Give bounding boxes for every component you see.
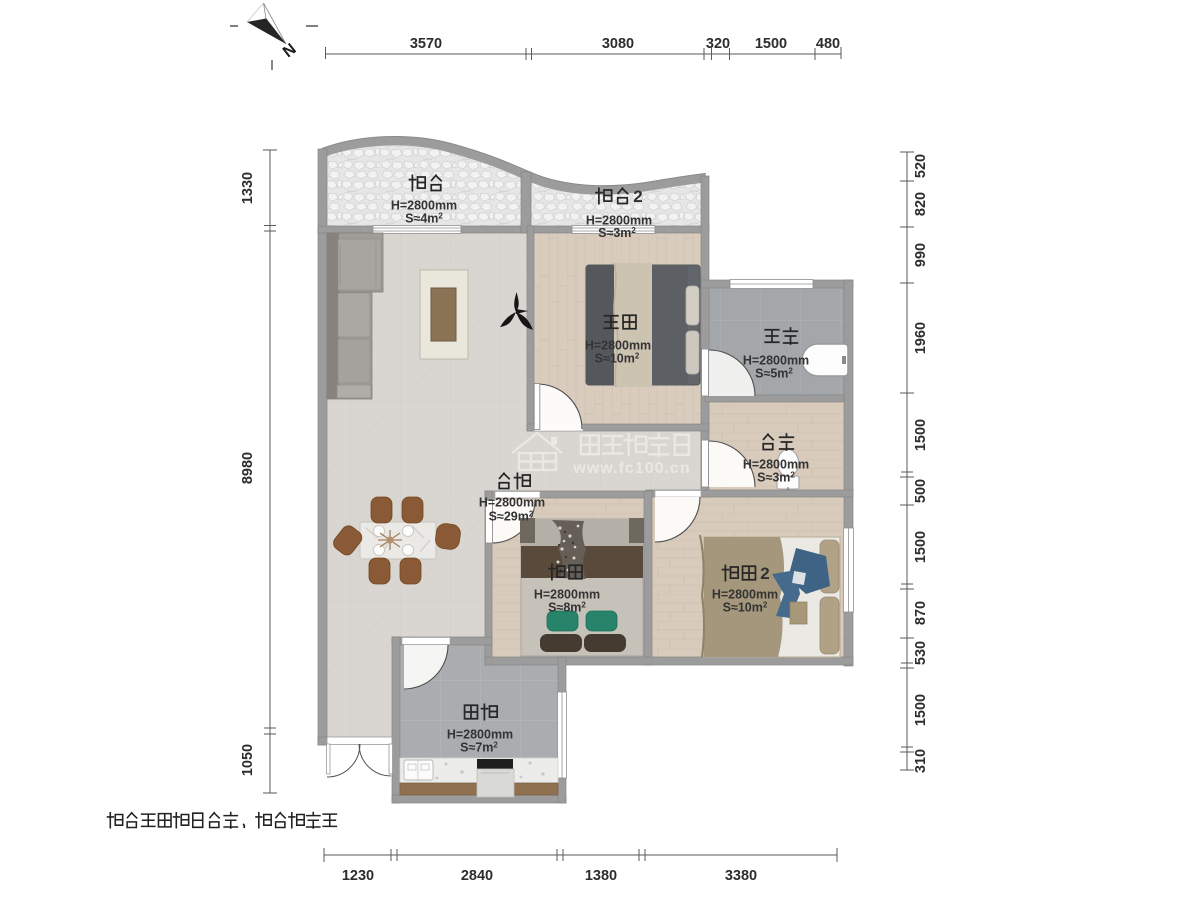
svg-text:480: 480 bbox=[816, 36, 840, 52]
svg-text:H=2800mm: H=2800mm bbox=[447, 728, 513, 742]
svg-text:1500: 1500 bbox=[913, 419, 929, 451]
svg-text:S≈5m2: S≈5m2 bbox=[755, 367, 793, 381]
svg-text:1230: 1230 bbox=[342, 868, 374, 884]
svg-text:www.fc100.cn: www.fc100.cn bbox=[572, 460, 690, 477]
svg-text:H=2800mm: H=2800mm bbox=[743, 458, 809, 472]
svg-text:S≈4m2: S≈4m2 bbox=[405, 212, 443, 226]
svg-text:H=2800mm: H=2800mm bbox=[712, 588, 778, 602]
svg-text:S≈29m2: S≈29m2 bbox=[489, 510, 534, 524]
svg-text:1500: 1500 bbox=[913, 694, 929, 726]
svg-text:3570: 3570 bbox=[410, 36, 442, 52]
svg-text:530: 530 bbox=[913, 641, 929, 665]
svg-text:500: 500 bbox=[913, 479, 929, 503]
svg-text:8980: 8980 bbox=[240, 452, 256, 484]
svg-text:H=2800mm: H=2800mm bbox=[479, 496, 545, 510]
svg-text:820: 820 bbox=[913, 192, 929, 216]
svg-text:2: 2 bbox=[633, 187, 642, 206]
svg-text:320: 320 bbox=[706, 36, 730, 52]
svg-text:H=2800mm: H=2800mm bbox=[743, 354, 809, 368]
svg-text:1500: 1500 bbox=[913, 531, 929, 563]
svg-text:310: 310 bbox=[913, 749, 929, 773]
svg-text:S≈3m2: S≈3m2 bbox=[598, 226, 636, 240]
svg-text:3380: 3380 bbox=[725, 868, 757, 884]
svg-text:S≈3m2: S≈3m2 bbox=[757, 471, 795, 485]
svg-text:S≈10m2: S≈10m2 bbox=[595, 352, 640, 366]
svg-text:3080: 3080 bbox=[602, 36, 634, 52]
svg-text:2: 2 bbox=[760, 564, 769, 583]
svg-text:1050: 1050 bbox=[240, 744, 256, 776]
svg-text:2840: 2840 bbox=[461, 868, 493, 884]
svg-text:870: 870 bbox=[913, 601, 929, 625]
svg-text:1330: 1330 bbox=[240, 172, 256, 204]
svg-text:1960: 1960 bbox=[913, 322, 929, 354]
svg-text:N: N bbox=[280, 41, 300, 62]
svg-text:990: 990 bbox=[913, 243, 929, 267]
svg-text:S≈7m2: S≈7m2 bbox=[460, 741, 498, 755]
svg-text:H=2800mm: H=2800mm bbox=[585, 339, 651, 353]
svg-text:S≈8m2: S≈8m2 bbox=[548, 601, 586, 615]
svg-text:H=2800mm: H=2800mm bbox=[534, 588, 600, 602]
svg-text:1500: 1500 bbox=[755, 36, 787, 52]
svg-text:H=2800mm: H=2800mm bbox=[391, 199, 457, 213]
svg-text:520: 520 bbox=[913, 154, 929, 178]
svg-text:1380: 1380 bbox=[585, 868, 617, 884]
svg-text:S≈10m2: S≈10m2 bbox=[723, 601, 768, 615]
